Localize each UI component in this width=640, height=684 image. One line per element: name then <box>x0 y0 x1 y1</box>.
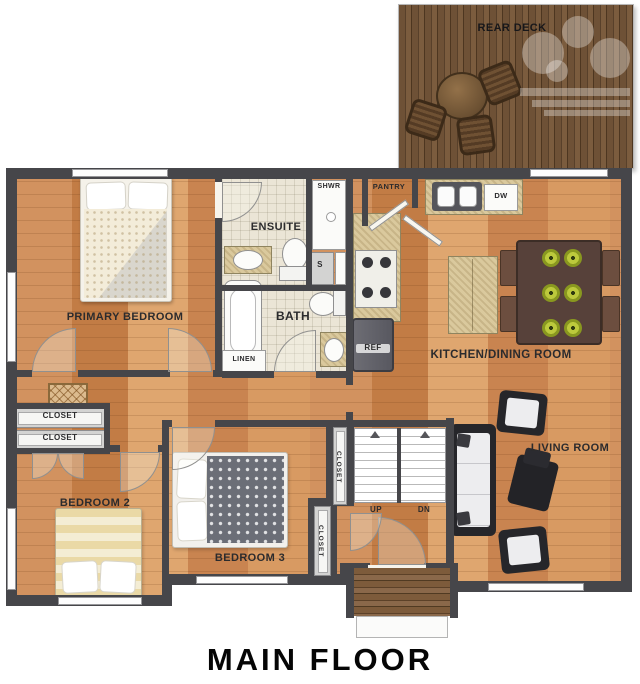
place-setting <box>542 284 560 302</box>
kitchen-dining-label: KITCHEN/DINING ROOM <box>418 349 584 362</box>
stair-arrow-down-icon <box>420 431 430 438</box>
ensuite-sink <box>233 250 263 270</box>
storage-label: S <box>308 261 332 270</box>
bedroom2-bed <box>55 508 142 598</box>
watermark-logo <box>520 14 634 118</box>
place-setting <box>564 319 582 337</box>
kitchen-island <box>448 256 498 334</box>
window <box>72 169 168 177</box>
pillow <box>61 560 99 594</box>
cover <box>172 585 346 606</box>
ensuite-label: ENSUITE <box>240 221 312 233</box>
stairs-closet-label: CLOSET <box>335 438 342 496</box>
pillow <box>176 500 207 541</box>
stairs-up-label: UP <box>358 506 394 515</box>
stair-arrow-up-icon <box>370 431 380 438</box>
wall <box>215 420 332 427</box>
window <box>58 597 142 605</box>
wall <box>213 370 222 377</box>
wall <box>316 371 348 378</box>
place-setting <box>542 249 560 267</box>
page-title: MAIN FLOOR <box>0 642 640 678</box>
window <box>488 583 584 591</box>
shower-label: SHWR <box>314 183 344 191</box>
pillow <box>128 181 169 210</box>
cover <box>455 592 630 606</box>
bedroom3-label: BEDROOM 3 <box>192 552 308 564</box>
pantry-label: PANTRY <box>366 183 412 191</box>
deck-chair <box>456 114 497 157</box>
wall <box>308 498 354 506</box>
hall-closet-top-label: CLOSET <box>18 412 102 421</box>
kitchen-sink-unit <box>432 182 482 211</box>
living-room-label: LIVING ROOM <box>506 442 634 454</box>
wall <box>78 370 170 377</box>
window <box>7 508 16 590</box>
wall <box>446 418 454 585</box>
armchair <box>498 526 550 575</box>
window <box>530 169 608 177</box>
dining-chair <box>602 250 620 286</box>
wall <box>162 574 172 606</box>
place-setting <box>542 319 560 337</box>
stair-divider <box>397 428 401 503</box>
armchair <box>496 390 548 437</box>
primary-bedroom-label: PRIMARY BEDROOM <box>55 311 195 323</box>
refrigerator-label: REF <box>356 344 390 353</box>
wall <box>621 168 632 592</box>
porch-steps <box>354 568 450 616</box>
wall <box>222 285 346 291</box>
blanket <box>84 209 167 298</box>
ensuite-toilet-tank <box>279 266 309 281</box>
bedroom3-closet-label: CLOSET <box>317 512 324 570</box>
wall <box>346 172 353 385</box>
bath-toilet-tank <box>333 290 346 316</box>
wall <box>104 445 120 452</box>
stairs-down-label: DN <box>406 506 442 515</box>
floor-plan-canvas: REAR DECK <box>0 0 640 684</box>
porch-rail <box>450 566 458 618</box>
pillow <box>86 181 127 210</box>
wall <box>326 427 333 505</box>
bedroom3-bed <box>172 452 288 548</box>
bath-sink <box>324 338 344 362</box>
cabinet <box>335 252 346 285</box>
shower-drain-icon <box>326 212 336 222</box>
window <box>196 576 288 584</box>
primary-bed <box>80 176 172 302</box>
bedroom2-label: BEDROOM 2 <box>35 497 155 509</box>
place-setting <box>564 284 582 302</box>
wall <box>347 427 354 505</box>
dishwasher-label: DW <box>486 192 516 200</box>
window <box>7 272 16 362</box>
hall-closet-bottom-label: CLOSET <box>18 434 102 443</box>
porch-landing <box>356 616 448 638</box>
wall <box>331 506 337 576</box>
linen-label: LINEN <box>224 356 264 364</box>
blanket <box>207 456 284 543</box>
pillow <box>99 560 137 594</box>
wall <box>10 370 32 377</box>
sofa <box>450 424 496 536</box>
wall <box>162 420 172 427</box>
ensuite-door-opening <box>215 182 222 218</box>
place-setting <box>564 249 582 267</box>
wall <box>10 403 110 409</box>
bath-label: BATH <box>266 310 320 323</box>
wall <box>412 176 418 208</box>
dining-chair <box>602 296 620 332</box>
porch-rail <box>346 566 354 618</box>
stove <box>355 250 397 308</box>
wall <box>326 420 454 427</box>
wall <box>162 427 169 574</box>
wall <box>222 371 274 378</box>
